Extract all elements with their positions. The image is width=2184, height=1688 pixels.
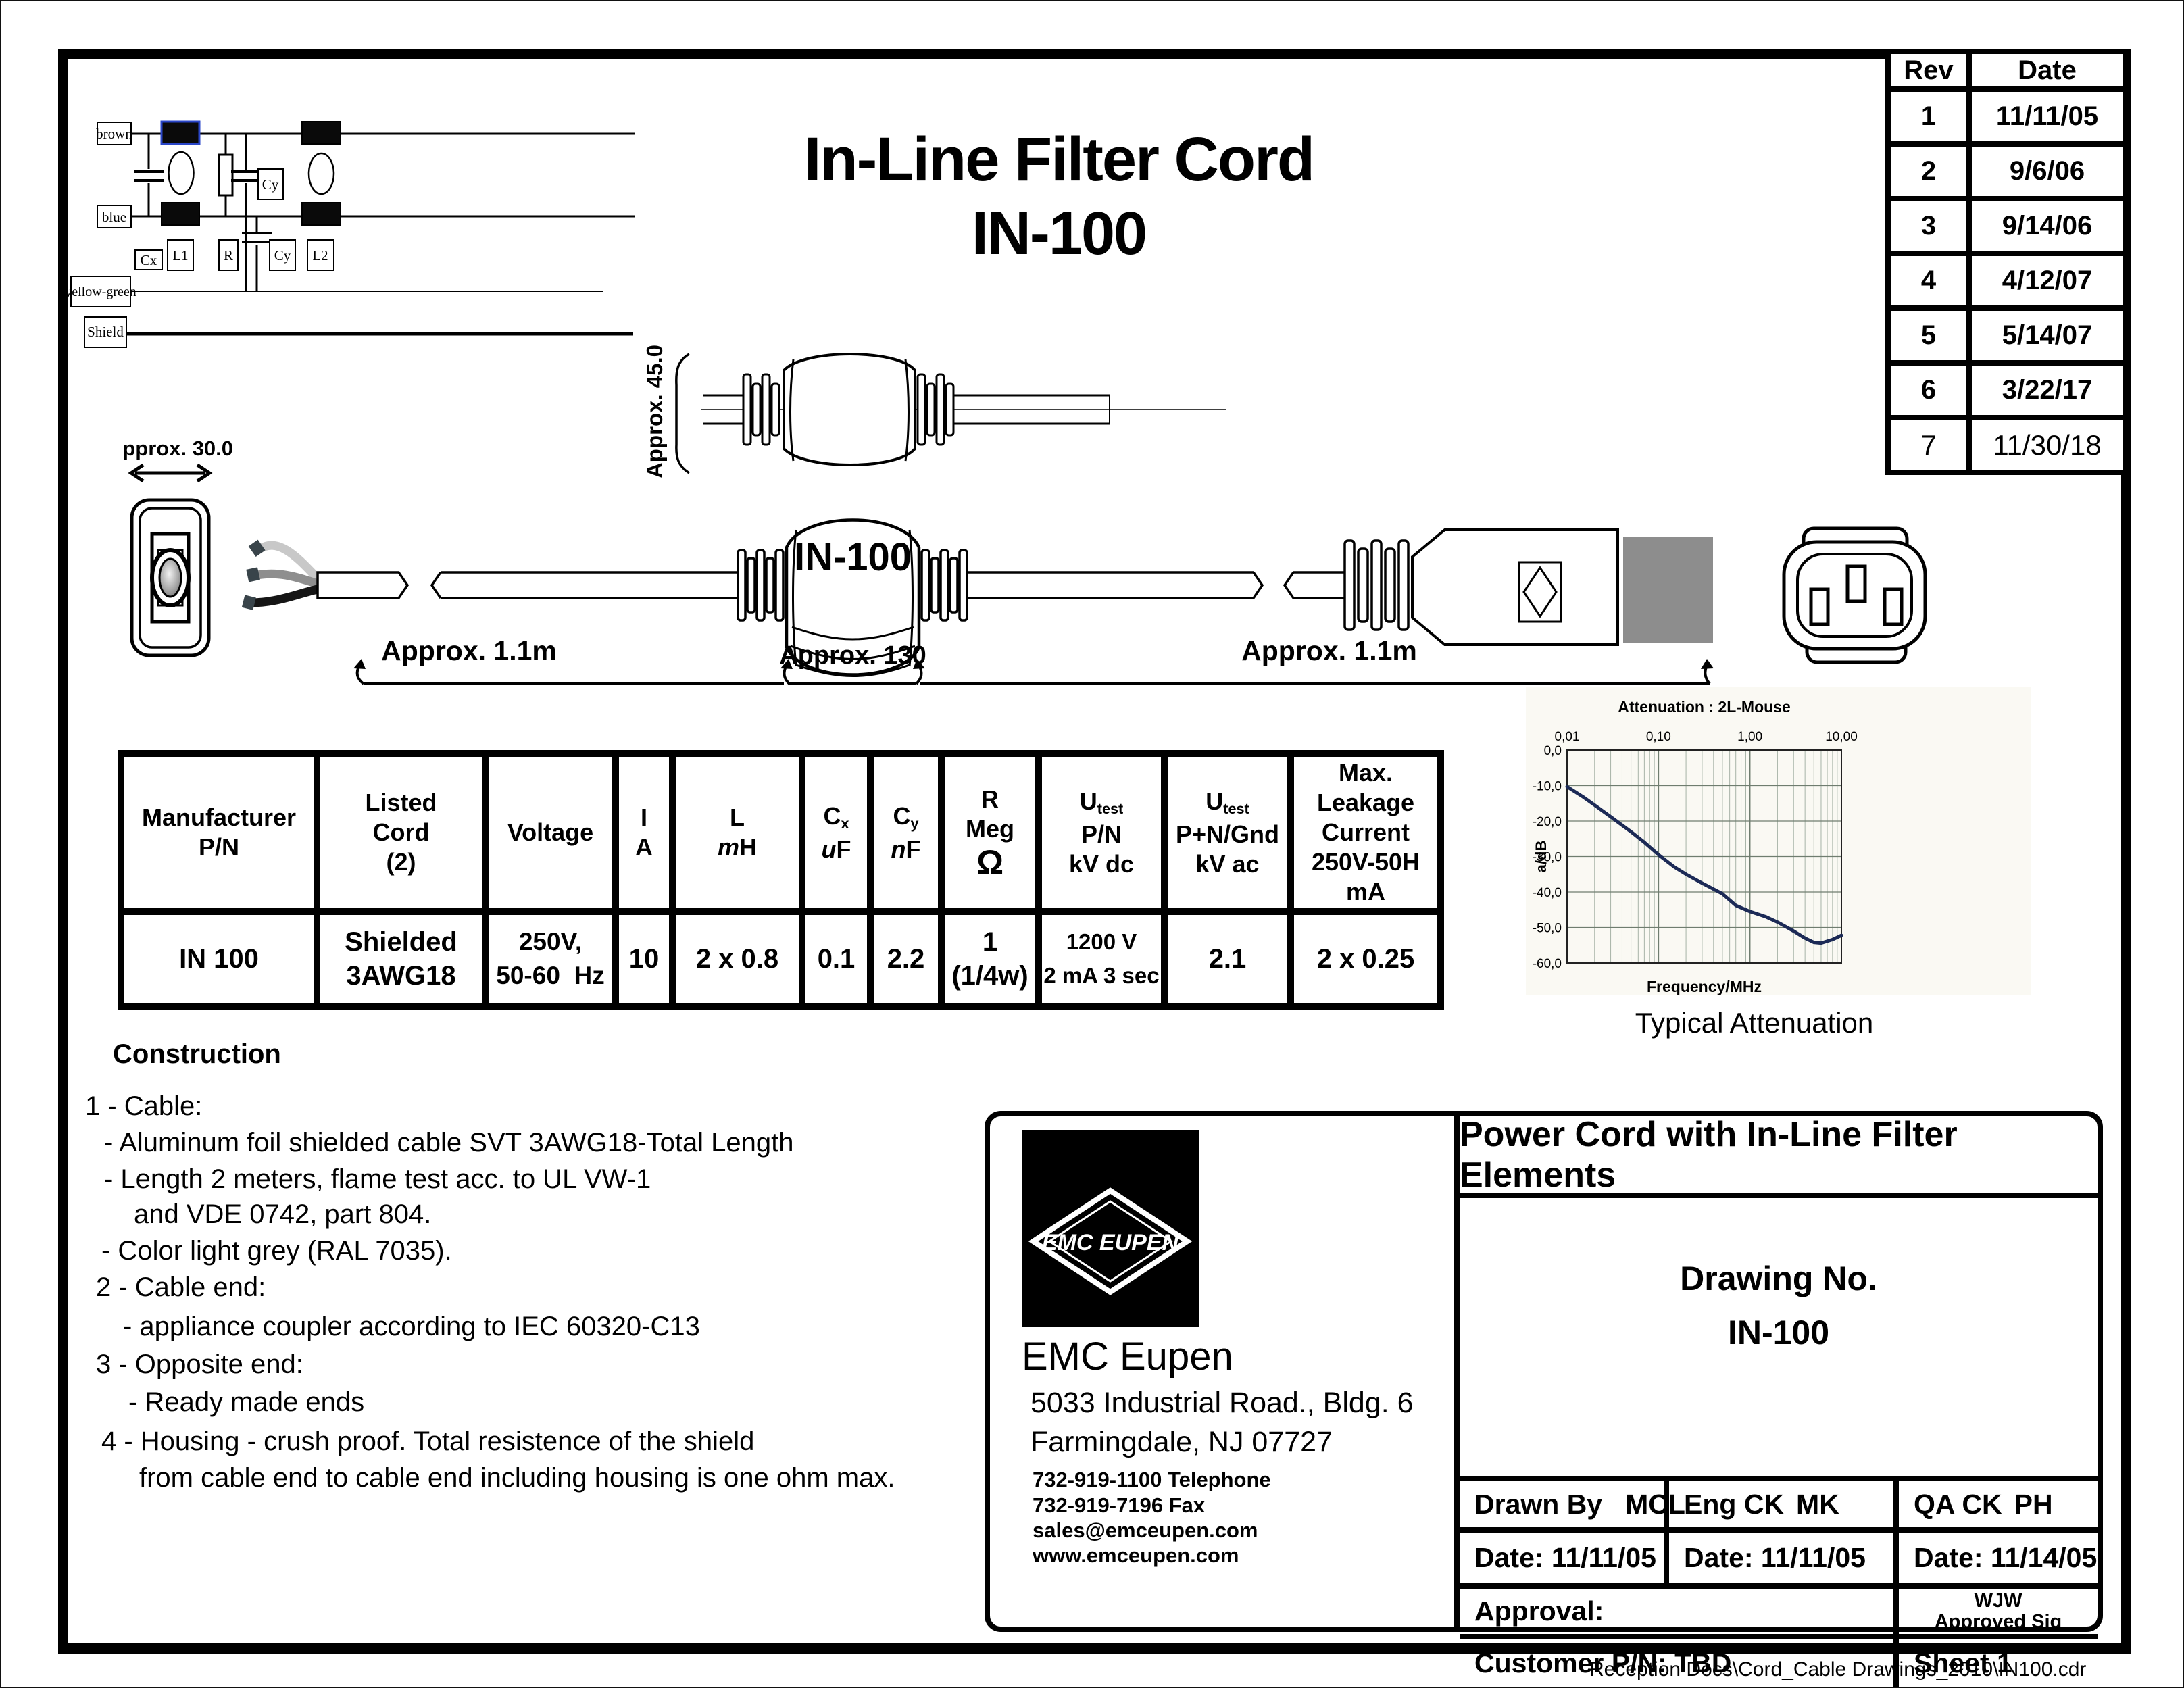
- spec-header-cell: LmH: [676, 757, 799, 908]
- x-tick-label: 10,00: [1825, 730, 1858, 744]
- chart-caption: Typical Attenuation: [1626, 1007, 1883, 1039]
- title-block: EMC EUPEN EMC Eupen 5033 Industrial Road…: [985, 1111, 2103, 1632]
- company-address2: Farmingdale, NJ 07727: [1031, 1426, 1333, 1459]
- dimension-arrow: [131, 465, 209, 481]
- spec-data-cell: 0.1: [805, 915, 867, 1003]
- filter-body-label: IN-100: [794, 535, 912, 579]
- cx-capacitor-symbol: [134, 134, 164, 216]
- wire-tip: [249, 540, 266, 557]
- construction-item: 2 - Cable end:: [96, 1272, 266, 1303]
- y-tick-label: 0,0: [1544, 744, 1562, 758]
- x-tick-label: 1,00: [1737, 730, 1762, 744]
- spec-data-cell: 2.2: [874, 915, 938, 1003]
- approval-cell: Approval:: [1460, 1589, 1899, 1634]
- component-label-l2: L2: [307, 240, 334, 270]
- spec-header-cell: Voltage: [489, 757, 612, 908]
- construction-item: - appliance coupler according to IEC 603…: [123, 1312, 700, 1342]
- cable-segment: [432, 572, 738, 598]
- dimension-bracket: [676, 354, 689, 473]
- spec-header-cell: IA: [619, 757, 669, 908]
- filter-length-dimension: Approx. 130: [779, 641, 926, 684]
- rev-date: 3/22/17: [1972, 366, 2123, 415]
- wire-label-brown: brown: [96, 122, 132, 145]
- y-tick-label: -10,0: [1533, 780, 1562, 794]
- neutral-slot: [1885, 589, 1902, 624]
- component-label-cy-upper: Cy: [258, 169, 283, 199]
- wire-tip: [242, 595, 256, 610]
- spec-header-cell: UtestP+N/GndkV ac: [1168, 757, 1287, 908]
- spec-header-cell: CxuF: [805, 757, 867, 908]
- title-block-fields: Power Cord with In-Line Filter Elements …: [1460, 1116, 2098, 1627]
- construction-heading: Construction: [113, 1039, 281, 1070]
- document-title: Power Cord with In-Line Filter Elements: [1460, 1116, 2098, 1198]
- filter-length-dimension-label: Approx. 130: [779, 641, 926, 670]
- rev-date: 11/30/18: [1972, 420, 2123, 470]
- connector-pin: [159, 559, 181, 597]
- diamond-logo-icon: [1519, 562, 1561, 622]
- page-title: In-Line Filter Cord IN-100: [653, 123, 1464, 272]
- x-tick-label: 0,01: [1555, 730, 1580, 744]
- qa-ck-cell: QA CKPH: [1899, 1481, 2098, 1527]
- filter-height-dimension: Approx. 45.0: [642, 345, 667, 478]
- rev-date: 9/6/06: [1972, 147, 2123, 196]
- drawn-date-cell: Date: 11/11/05: [1460, 1533, 1669, 1583]
- eng-ck-cell: Eng CKMK: [1669, 1481, 1899, 1527]
- right-strain-relief: [922, 550, 967, 620]
- drawn-by-label: Drawn By: [1474, 1489, 1602, 1520]
- left-cable-dimension-label: Approx. 1.1m: [381, 635, 557, 666]
- blue-label: blue: [102, 209, 126, 225]
- wire-label-blue: blue: [97, 205, 131, 228]
- construction-item: and VDE 0742, part 804.: [134, 1199, 431, 1230]
- spec-data-cell: 2 x 0.25: [1294, 915, 1437, 1003]
- construction-item: - Color light grey (RAL 7035).: [101, 1236, 452, 1266]
- y-tick-label: -20,0: [1533, 815, 1562, 829]
- earth-slot: [1847, 566, 1865, 601]
- right-strain-relief: [918, 374, 953, 445]
- spec-data-cell: 2 x 0.8: [676, 915, 799, 1003]
- spec-header-cell: UtestP/NkV dc: [1042, 757, 1161, 908]
- rev-number: 4: [1891, 256, 1966, 305]
- wire-label-yellow-green: yellow-green: [65, 276, 136, 307]
- line-slot: [1811, 589, 1828, 624]
- drawing-no-label: Drawing No.: [1460, 1259, 2098, 1298]
- housing-width-dimension: Approx. 30.0: [123, 437, 233, 460]
- logo-text: EMC EUPEN: [1042, 1230, 1180, 1256]
- company-email: sales@emceupen.com: [1033, 1518, 1258, 1543]
- left-strain-relief: [738, 550, 783, 620]
- construction-item: - Length 2 meters, flame test acc. to UL…: [104, 1164, 651, 1195]
- date-row: Date: 11/11/05 Date: 11/11/05 Date: 11/1…: [1460, 1533, 2098, 1589]
- approval-row: Approval: WJW Approved Sig: [1460, 1589, 2098, 1639]
- cy-lower-label: Cy: [274, 247, 291, 264]
- approved-sig-cell: WJW Approved Sig: [1899, 1589, 2098, 1634]
- rev-number: 7: [1891, 420, 1966, 470]
- r-label: R: [224, 247, 233, 264]
- cable-segment: [967, 572, 1345, 598]
- file-path: Reception Docs\Cord_Cable Drawings_2010\…: [1589, 1658, 2086, 1681]
- drawing-no-value: IN-100: [1460, 1313, 2098, 1352]
- stripped-wires: [242, 540, 318, 610]
- wire-label-shield: Shield: [84, 317, 126, 347]
- qa-date-cell: Date: 11/14/05: [1899, 1533, 2098, 1583]
- spec-table: ManufacturerP/NListedCord(2)VoltageIALmH…: [118, 750, 1444, 1010]
- spec-data-cell: 1200 V2 mA 3 sec: [1042, 915, 1161, 1003]
- eng-ck-label: Eng CK: [1684, 1489, 1784, 1520]
- rev-header: Rev: [1891, 54, 1966, 86]
- construction-item: - Ready made ends: [128, 1387, 364, 1418]
- chart-title: Attenuation : 2L-Mouse: [1618, 698, 1791, 716]
- rev-number: 3: [1891, 201, 1966, 251]
- left-strain-relief: [743, 374, 779, 445]
- check-row: Drawn ByMCL Eng CKMK QA CKPH: [1460, 1481, 2098, 1533]
- rev-date: 4/12/07: [1972, 256, 2123, 305]
- spec-header-cell: ListedCord(2): [320, 757, 482, 908]
- c13-plug-body: [1412, 530, 1618, 645]
- attenuation-chart: Attenuation : 2L-Mouse0,0-10,0-20,0-30,0…: [1522, 677, 2035, 1015]
- y-tick-label: -40,0: [1533, 886, 1562, 900]
- x-tick-label: 0,10: [1646, 730, 1671, 744]
- y-tick-label: -50,0: [1533, 922, 1562, 936]
- approved-sig-initials: WJW: [1975, 1591, 2022, 1612]
- date-header: Date: [1972, 54, 2123, 86]
- rev-number: 5: [1891, 311, 1966, 360]
- cx-label: Cx: [141, 252, 157, 268]
- c13-face-view: [1772, 522, 1937, 670]
- wire-tip: [246, 567, 260, 582]
- construction-item: 3 - Opposite end:: [96, 1349, 303, 1380]
- l2-choke-symbol: [302, 122, 341, 225]
- rev-number: 6: [1891, 366, 1966, 415]
- x-axis-label: Frequency/MHz: [1647, 978, 1762, 995]
- chart-background: [1526, 687, 2031, 995]
- filter-circuit-schematic: brown blue yellow-green Shield Cy Cx L1: [62, 89, 650, 359]
- qa-ck-label: QA CK: [1914, 1489, 2002, 1520]
- emc-eupen-logo-icon: EMC EUPEN: [1022, 1130, 1199, 1327]
- component-label-cx: Cx: [135, 250, 162, 270]
- spec-header-cell: ManufacturerP/N: [124, 757, 314, 908]
- company-address1: 5033 Industrial Road., Bldg. 6: [1031, 1387, 1414, 1420]
- filter-body-top-view: Approx. 45.0: [637, 331, 1245, 487]
- cy-upper-label: Cy: [262, 176, 279, 193]
- rev-date: 5/14/07: [1972, 311, 2123, 360]
- spec-header-cell: CynF: [874, 757, 938, 908]
- component-label-l1: L1: [168, 240, 193, 270]
- construction-item: 4 - Housing - crush proof. Total resiste…: [101, 1426, 754, 1457]
- plug-strain-relief: [1345, 541, 1408, 630]
- component-label-r: R: [219, 240, 238, 270]
- cable-segment: [318, 572, 407, 598]
- filter-barrel: [784, 354, 915, 465]
- construction-item: - Aluminum foil shielded cable SVT 3AWG1…: [104, 1128, 794, 1158]
- shield-label: Shield: [87, 324, 124, 340]
- spec-data-cell: 250V,50-60 Hz: [489, 915, 612, 1003]
- drawn-by-cell: Drawn ByMCL: [1460, 1481, 1669, 1527]
- page-title-line1: In-Line Filter Cord: [653, 123, 1464, 196]
- spec-header-cell: RMegΩ: [945, 757, 1035, 908]
- spec-data-cell: Shielded3AWG18: [320, 915, 482, 1003]
- company-phone: 732-919-1100 Telephone: [1033, 1468, 1271, 1492]
- y-tick-label: -60,0: [1533, 957, 1562, 971]
- approved-sig-label: Approved Sig: [1935, 1612, 2062, 1633]
- company-name: EMC Eupen: [1022, 1334, 1233, 1379]
- y-axis-label: a/dB: [1533, 841, 1549, 873]
- spec-header-cell: Max.LeakageCurrent250V-50HmA: [1294, 757, 1437, 908]
- qa-ck-value: PH: [2014, 1489, 2053, 1520]
- revision-table: RevDate111/11/0529/6/0639/14/0644/12/075…: [1885, 49, 2128, 475]
- left-cable-dimension: Approx. 1.1m: [353, 635, 784, 684]
- c13-plug-grey-cap: [1623, 537, 1713, 643]
- spec-data-cell: 2.1: [1168, 915, 1287, 1003]
- yellow-green-label: yellow-green: [65, 284, 136, 299]
- eng-ck-value: MK: [1796, 1489, 1839, 1520]
- l1-choke-symbol: [162, 122, 199, 225]
- spec-data-cell: IN 100: [124, 915, 314, 1003]
- component-label-cy-lower: Cy: [270, 240, 295, 270]
- eng-date-cell: Date: 11/11/05: [1669, 1533, 1899, 1583]
- drawing-number-block: Drawing No. IN-100: [1460, 1259, 2098, 1481]
- rev-number: 1: [1891, 92, 1966, 141]
- l2-label: L2: [312, 247, 328, 264]
- right-cable-dimension-label: Approx. 1.1m: [1241, 635, 1417, 666]
- construction-item: from cable end to cable end including ho…: [139, 1463, 895, 1493]
- company-logo: EMC EUPEN: [1022, 1130, 1199, 1327]
- l1-label: L1: [172, 247, 188, 264]
- r-resistor-symbol: [219, 134, 232, 216]
- rev-date: 9/14/06: [1972, 201, 2123, 251]
- brown-label: brown: [96, 126, 132, 142]
- rev-number: 2: [1891, 147, 1966, 196]
- construction-item: 1 - Cable:: [85, 1091, 202, 1122]
- page-title-line2: IN-100: [653, 196, 1464, 272]
- drawing-sheet: brown blue yellow-green Shield Cy Cx L1: [0, 0, 2184, 1688]
- spec-data-cell: 1(1/4w): [945, 915, 1035, 1003]
- spec-data-cell: 10: [619, 915, 669, 1003]
- company-fax: 732-919-7196 Fax: [1033, 1493, 1205, 1518]
- title-block-company-panel: EMC EUPEN EMC Eupen 5033 Industrial Road…: [990, 1116, 1460, 1627]
- company-website: www.emceupen.com: [1033, 1543, 1239, 1568]
- rev-date: 11/11/05: [1972, 92, 2123, 141]
